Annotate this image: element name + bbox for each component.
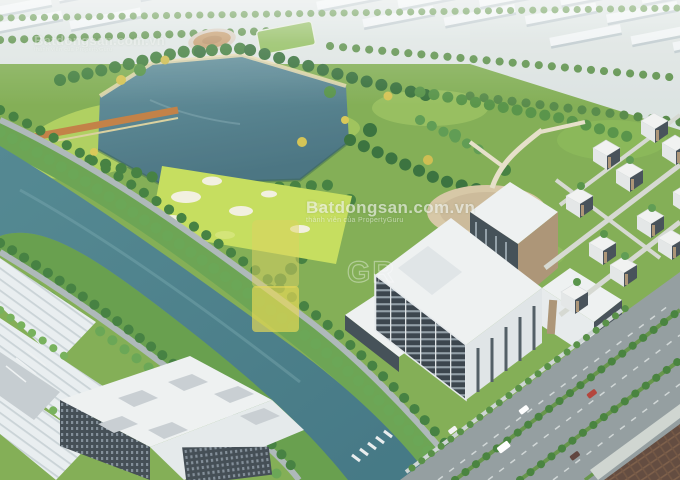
render-scene: GR <box>0 0 680 480</box>
aerial-render-image: GR Batdongsan.com.vn thành viên của Prop… <box>0 0 680 480</box>
watermark-outline-text: GR <box>347 256 396 289</box>
watermark-logo <box>252 220 299 332</box>
